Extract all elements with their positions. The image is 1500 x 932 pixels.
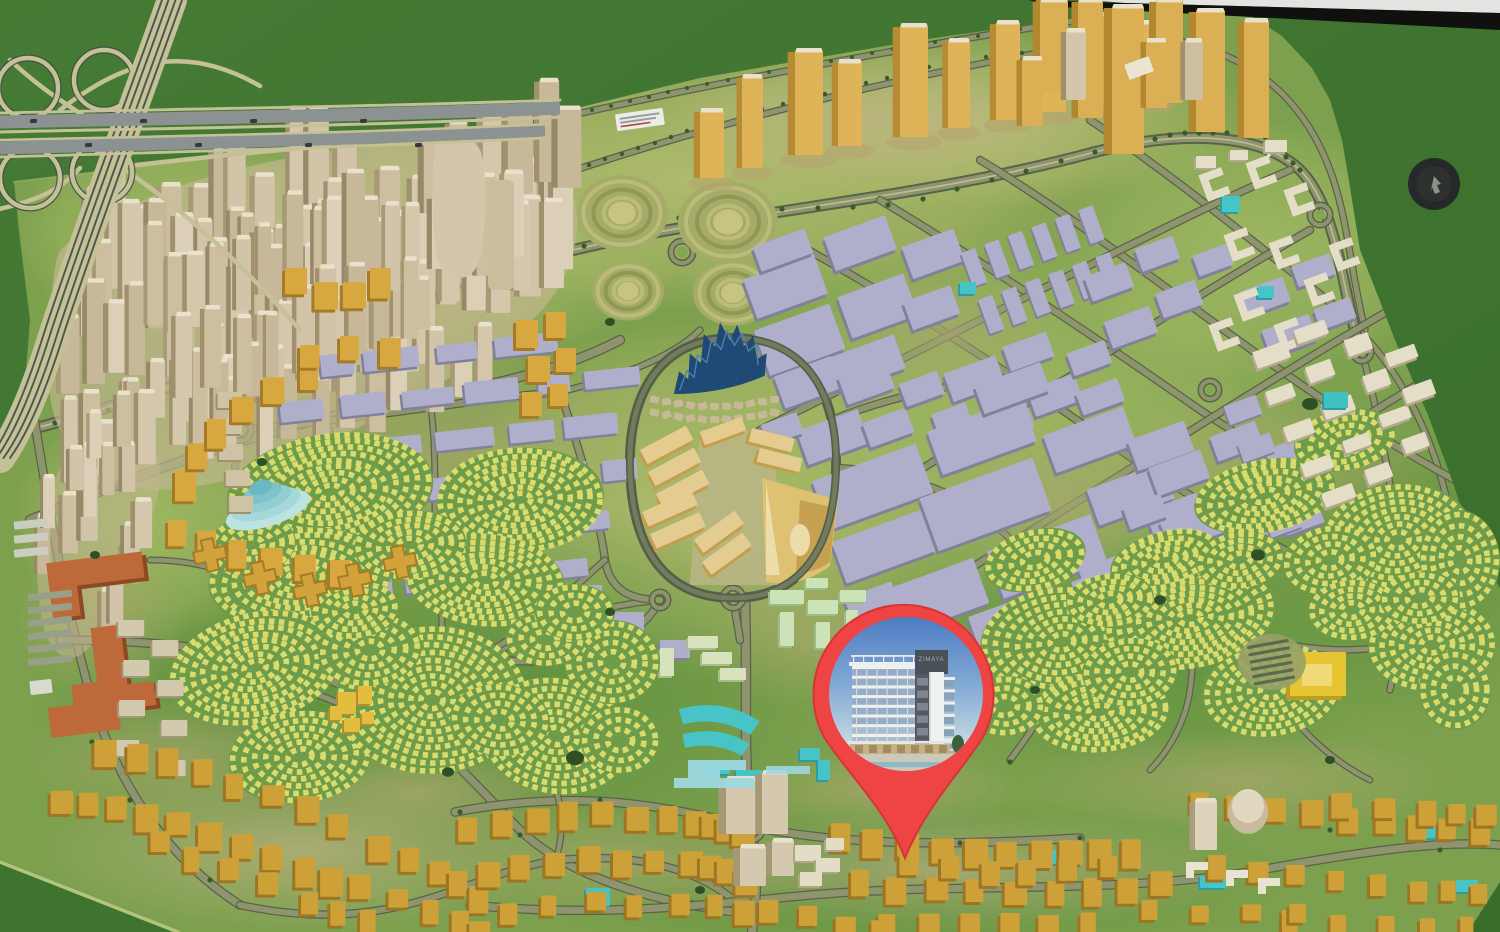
svg-text:ZIMAYA: ZIMAYA (919, 657, 945, 663)
